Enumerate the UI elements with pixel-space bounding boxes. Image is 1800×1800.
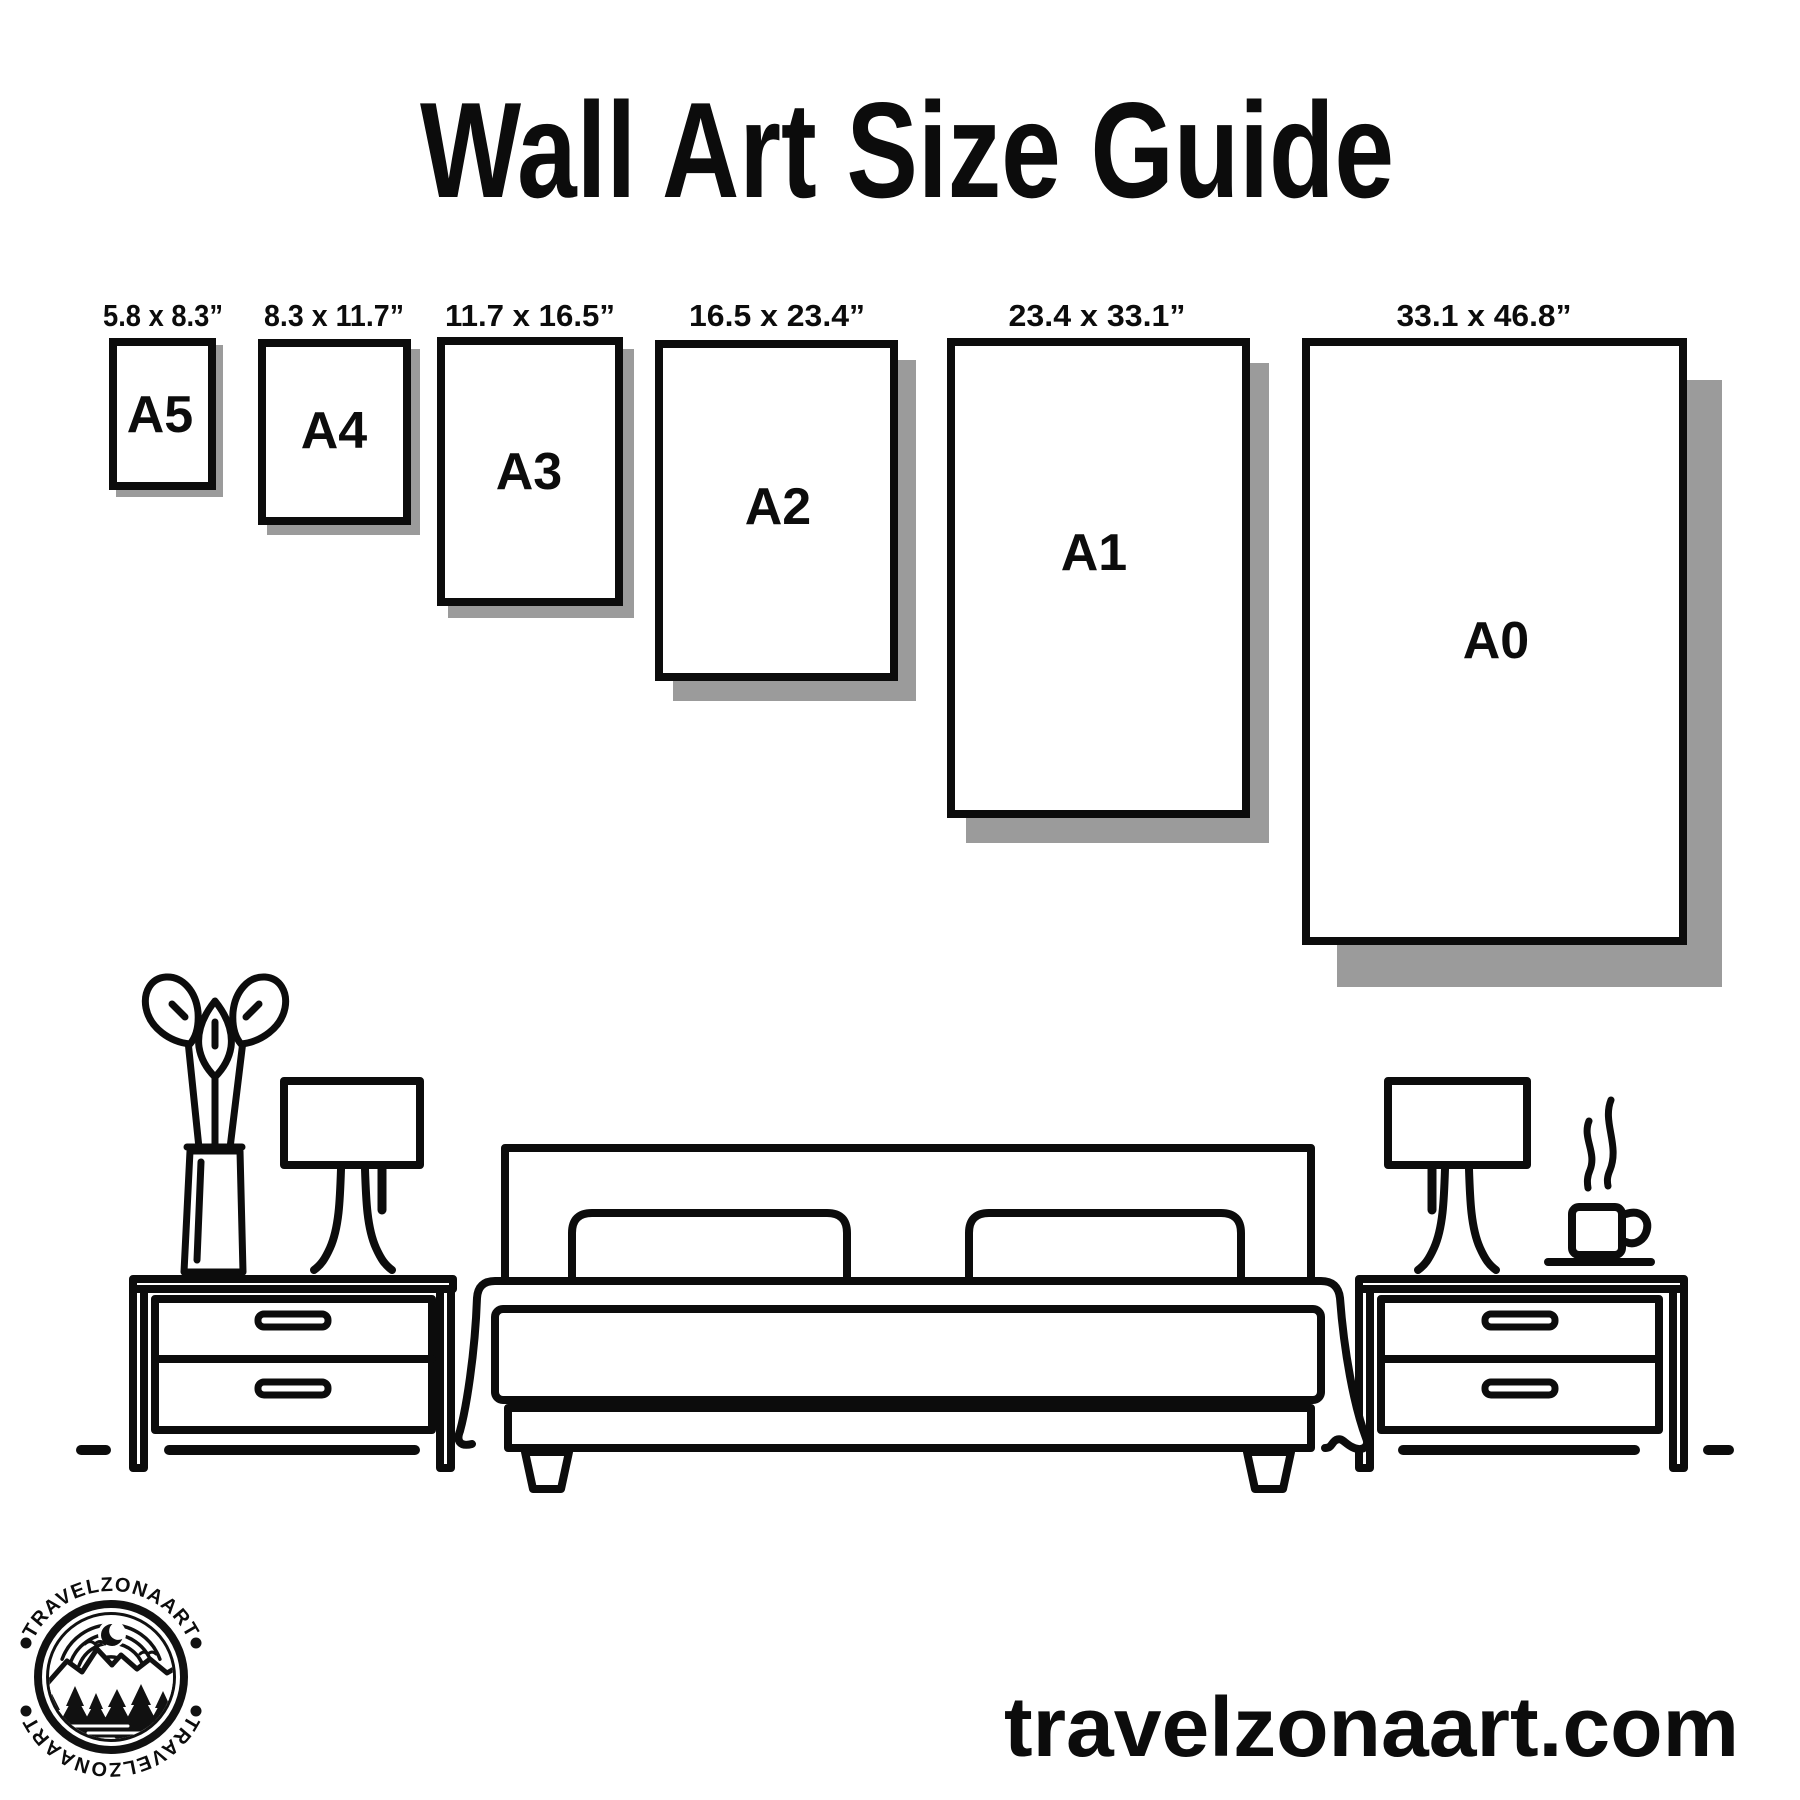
svg-text:Wall Art Size Guide: Wall Art Size Guide <box>420 74 1394 226</box>
svg-text:8.3 x 11.7”: 8.3 x 11.7” <box>264 298 404 333</box>
svg-text:A4: A4 <box>301 402 368 460</box>
svg-text:A5: A5 <box>127 386 193 444</box>
svg-text:5.8 x 8.3”: 5.8 x 8.3” <box>103 298 223 333</box>
svg-text:16.5 x 23.4”: 16.5 x 23.4” <box>689 298 865 333</box>
svg-text:11.7 x 16.5”: 11.7 x 16.5” <box>445 298 615 333</box>
svg-text:A1: A1 <box>1061 524 1127 582</box>
svg-text:33.1 x 46.8”: 33.1 x 46.8” <box>1397 298 1572 333</box>
svg-text:23.4 x 33.1”: 23.4 x 33.1” <box>1009 298 1186 333</box>
svg-text:A2: A2 <box>745 478 811 536</box>
svg-text:travelzonaart.com: travelzonaart.com <box>1004 1680 1739 1774</box>
svg-text:A3: A3 <box>496 443 562 501</box>
svg-text:A0: A0 <box>1463 612 1529 670</box>
